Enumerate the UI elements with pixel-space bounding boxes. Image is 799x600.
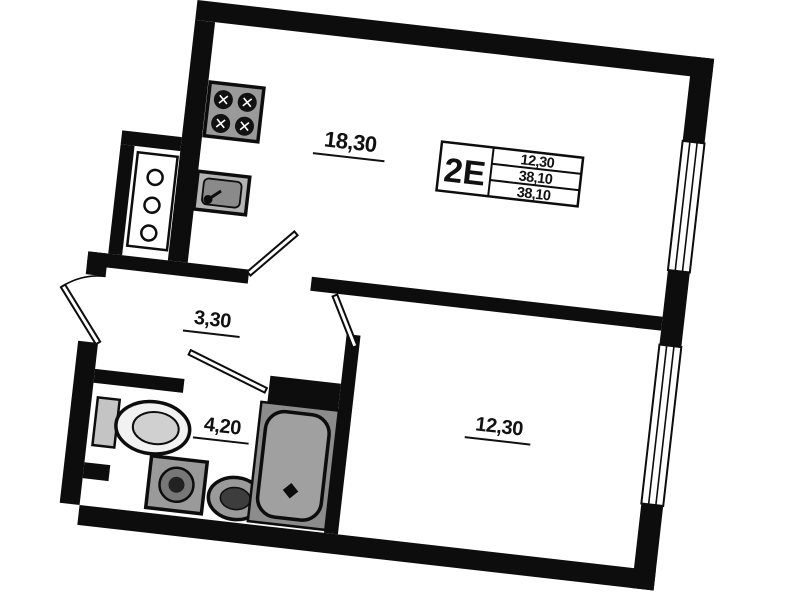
entrance-door-symbol <box>55 272 108 345</box>
window-1 <box>668 141 705 273</box>
room-area-bedroom: 12,30 <box>474 413 524 440</box>
unit-info-table: 2E 12,30 38,10 38,10 <box>436 142 583 208</box>
room-area-hallway: 3,30 <box>193 307 233 333</box>
wall-top <box>195 0 714 79</box>
living-room-door-leaf <box>247 231 297 275</box>
entrance-door-leaf <box>61 285 100 345</box>
wall-bath-pilaster <box>83 462 111 481</box>
wall-hall-top <box>87 251 250 283</box>
wall-hall-left-lower <box>60 341 98 505</box>
bathtub-symbol <box>248 402 339 530</box>
bathroom-door-leaf <box>189 350 267 392</box>
room-label-living-kitchen: 18,30 <box>313 125 388 161</box>
stove-symbol <box>204 82 264 142</box>
wall-bottom <box>77 505 656 591</box>
floor-plan: 18,30 3,30 4,20 12,30 2E <box>57 0 714 590</box>
unit-area-row-2: 38,10 <box>516 185 552 205</box>
room-area-bathroom: 4,20 <box>203 414 243 440</box>
window-2 <box>641 345 681 506</box>
floor-plan-page: 18,30 3,30 4,20 12,30 2E <box>0 0 799 600</box>
floor-plan-svg: 18,30 3,30 4,20 12,30 2E <box>57 0 714 590</box>
room-label-hallway: 3,30 <box>183 306 242 337</box>
room-label-bedroom: 12,30 <box>465 412 533 444</box>
room-label-bathroom: 4,20 <box>193 413 251 444</box>
wall-partition-rooms <box>310 277 662 331</box>
kitchen-sink-symbol <box>194 171 250 215</box>
washing-machine-symbol <box>146 456 208 514</box>
toilet-symbol <box>92 395 192 457</box>
wall-bath-top-left <box>93 369 184 393</box>
bedroom-door-leaf <box>333 295 358 348</box>
room-area-living-kitchen: 18,30 <box>323 126 378 157</box>
vent-shaft-symbol <box>127 152 177 250</box>
unit-type-label: 2E <box>442 151 488 193</box>
